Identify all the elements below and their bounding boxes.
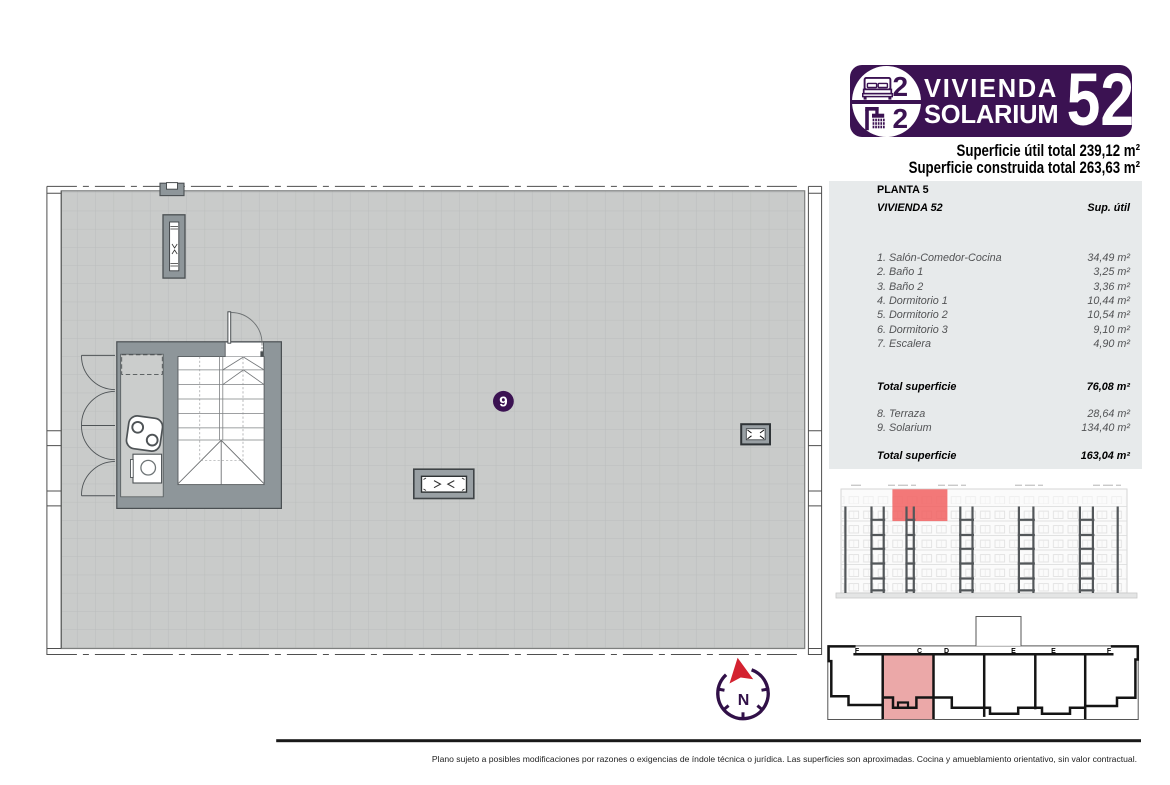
svg-text:F: F	[855, 648, 860, 655]
svg-text:D: D	[944, 648, 949, 655]
svg-text:N: N	[738, 692, 750, 709]
svg-text:E: E	[1011, 648, 1016, 655]
svg-text:F: F	[1107, 648, 1112, 655]
svg-text:C: C	[917, 648, 922, 655]
svg-text:9: 9	[499, 394, 507, 411]
svg-text:E: E	[1051, 648, 1056, 655]
